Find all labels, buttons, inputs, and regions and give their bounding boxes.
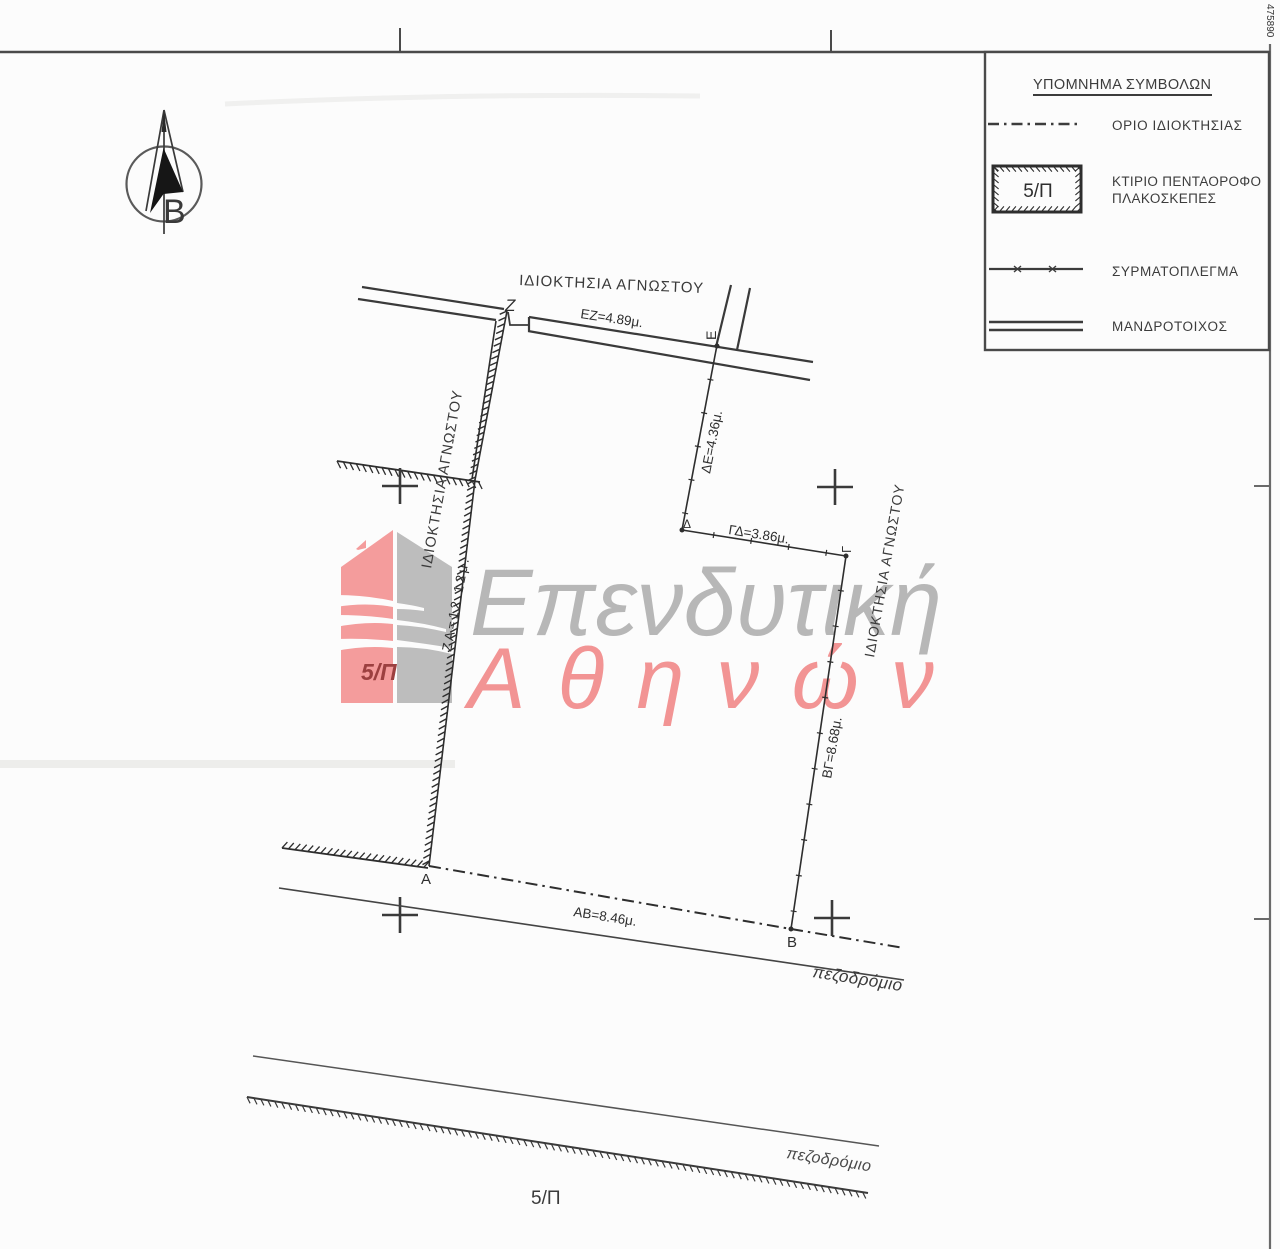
svg-text:5/Π: 5/Π bbox=[361, 659, 397, 685]
svg-text:5/Π: 5/Π bbox=[1023, 181, 1053, 202]
svg-text:ΣΥΡΜΑΤΟΠΛΕΓΜΑ: ΣΥΡΜΑΤΟΠΛΕΓΜΑ bbox=[1112, 264, 1238, 279]
svg-text:ΜΑΝΔΡΟΤΟΙΧΟΣ: ΜΑΝΔΡΟΤΟΙΧΟΣ bbox=[1112, 319, 1227, 334]
svg-text:Ε: Ε bbox=[703, 331, 719, 340]
svg-text:5/Π: 5/Π bbox=[531, 1188, 561, 1209]
svg-text:Γ: Γ bbox=[839, 546, 854, 553]
svg-text:Z: Z bbox=[504, 296, 516, 315]
svg-text:B: B bbox=[787, 934, 797, 951]
svg-text:475890: 475890 bbox=[1264, 4, 1275, 38]
svg-text:ΥΠΟΜΝΗΜΑ ΣΥΜΒΟΛΩΝ: ΥΠΟΜΝΗΜΑ ΣΥΜΒΟΛΩΝ bbox=[1033, 77, 1211, 93]
svg-text:A: A bbox=[421, 871, 431, 888]
svg-text:ΠΛΑΚΟΣΚΕΠΕΣ: ΠΛΑΚΟΣΚΕΠΕΣ bbox=[1112, 191, 1216, 206]
svg-text:Δ: Δ bbox=[683, 517, 691, 531]
svg-text:ΟΡΙΟ ΙΔΙΟΚΤΗΣΙΑΣ: ΟΡΙΟ ΙΔΙΟΚΤΗΣΙΑΣ bbox=[1112, 118, 1242, 133]
svg-text:Β: Β bbox=[163, 193, 186, 231]
svg-text:ΚΤΙΡΙΟ ΠΕΝΤΑΟΡΟΦΟ: ΚΤΙΡΙΟ ΠΕΝΤΑΟΡΟΦΟ bbox=[1112, 174, 1261, 189]
